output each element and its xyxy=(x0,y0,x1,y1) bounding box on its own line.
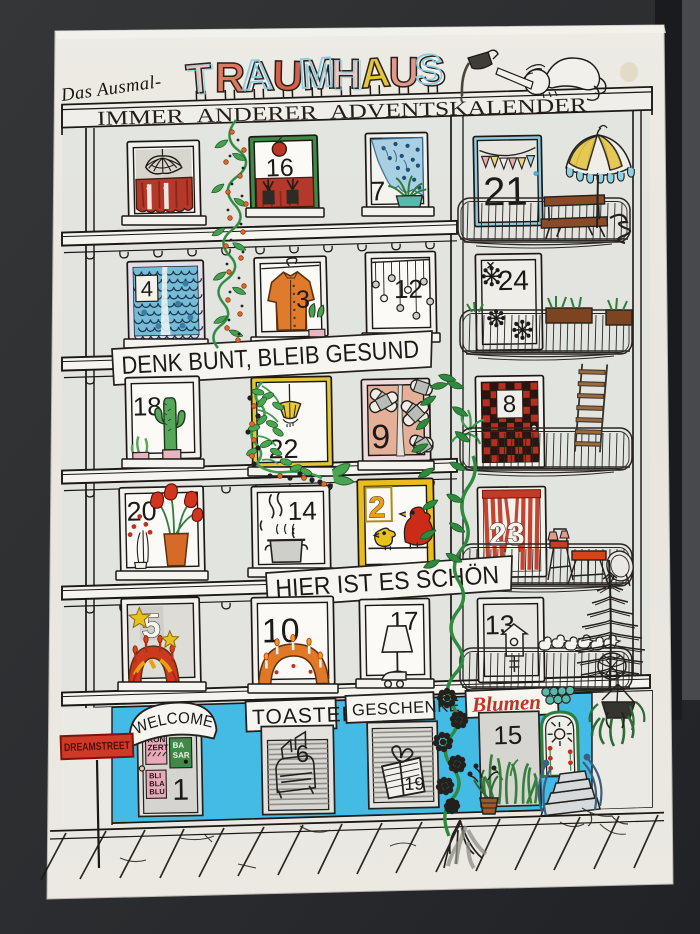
svg-text:BA: BA xyxy=(172,741,184,750)
svg-text:A: A xyxy=(358,48,392,97)
svg-text:S: S xyxy=(413,45,444,94)
svg-text:M: M xyxy=(297,48,335,97)
svg-text:23: 23 xyxy=(489,516,525,552)
svg-text:6: 6 xyxy=(295,741,309,768)
svg-text:A: A xyxy=(239,50,272,99)
svg-text:T: T xyxy=(186,55,216,104)
svg-text:15: 15 xyxy=(493,720,523,751)
svg-text:14: 14 xyxy=(287,496,316,527)
svg-text:3: 3 xyxy=(296,286,311,314)
svg-text:ZERT: ZERT xyxy=(148,743,169,752)
svg-text:BLU: BLU xyxy=(149,787,165,796)
svg-text:24: 24 xyxy=(497,265,529,296)
svg-text:9: 9 xyxy=(371,418,391,456)
svg-text:19: 19 xyxy=(404,774,424,794)
svg-text:21: 21 xyxy=(483,170,528,215)
svg-text:12: 12 xyxy=(394,274,423,305)
svg-text:DREAMSTREET: DREAMSTREET xyxy=(64,740,131,754)
svg-text:SAR: SAR xyxy=(173,751,190,760)
svg-text:2: 2 xyxy=(368,491,385,524)
svg-text:8: 8 xyxy=(503,391,517,418)
svg-text:4: 4 xyxy=(140,276,153,301)
svg-text:7: 7 xyxy=(370,176,386,206)
svg-text:1: 1 xyxy=(172,774,189,807)
